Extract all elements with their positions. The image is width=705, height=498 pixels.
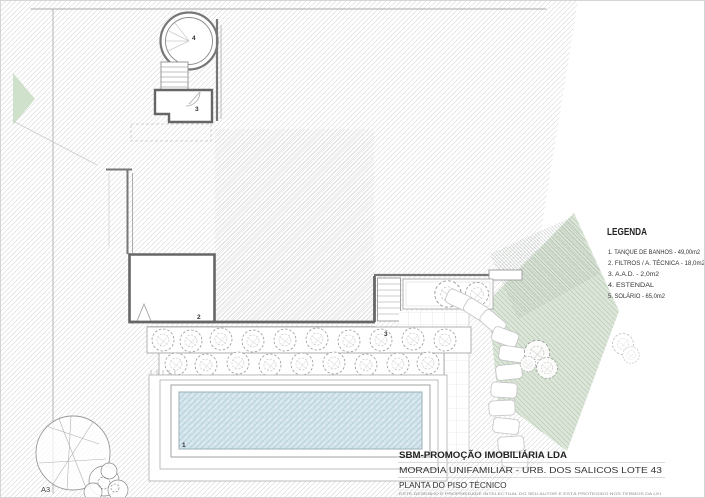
plan-label-3-aad: 3 xyxy=(195,106,199,113)
legend-item-tanque: 1. TANQUE DE BANHOS - 49,00m2 xyxy=(608,249,700,256)
pool-tanque xyxy=(179,392,422,449)
title-project: MORADIA UNIFAMILIAR - URB. DOS SALICOS L… xyxy=(399,465,662,475)
canopy-end-cap xyxy=(489,270,522,280)
floor-plan-svg: 4 3 2 3 1 LEGENDA 1. TANQUE DE BANHOS - … xyxy=(1,1,705,498)
plan-label-3-steps: 3 xyxy=(384,331,388,338)
shrubs-slope xyxy=(613,334,640,364)
plan-label-1-tanque: 1 xyxy=(182,442,186,449)
exterior-stairs xyxy=(378,278,401,321)
legend: LEGENDA 1. TANQUE DE BANHOS - 49,00m2 2.… xyxy=(607,227,705,300)
legend-title: LEGENDA xyxy=(607,227,647,238)
plan-label-2-filtros: 2 xyxy=(197,314,201,321)
sheet-size-label: A3 xyxy=(41,485,50,494)
house-roof-hatch xyxy=(215,129,374,321)
title-drawing: PLANTA DO PISO TÉCNICO xyxy=(399,480,507,490)
legend-item-filtros: 2. FILTROS / A. TÉCNICA - 18,0m2 xyxy=(608,258,705,267)
legend-item-estendal: 4. ESTENDAL xyxy=(608,282,654,289)
plan-label-4-estendal: 4 xyxy=(192,35,196,42)
title-company: SBM-PROMOÇÃO IMOBILIÁRIA LDA xyxy=(399,450,568,460)
title-disclaimer: ESTE DESENHO É PROPRIEDADE INTELECTUAL D… xyxy=(399,491,661,496)
legend-item-aad: 3. A.A.D. - 2,0m2 xyxy=(608,271,659,278)
legend-item-solario: 5. SOLÁRIO - 65,0m2 xyxy=(608,291,665,300)
title-block: SBM-PROMOÇÃO IMOBILIÁRIA LDA MORADIA UNI… xyxy=(398,450,665,496)
plan-sheet: 4 3 2 3 1 LEGENDA 1. TANQUE DE BANHOS - … xyxy=(0,0,705,498)
shrub-row-lower xyxy=(165,352,439,376)
